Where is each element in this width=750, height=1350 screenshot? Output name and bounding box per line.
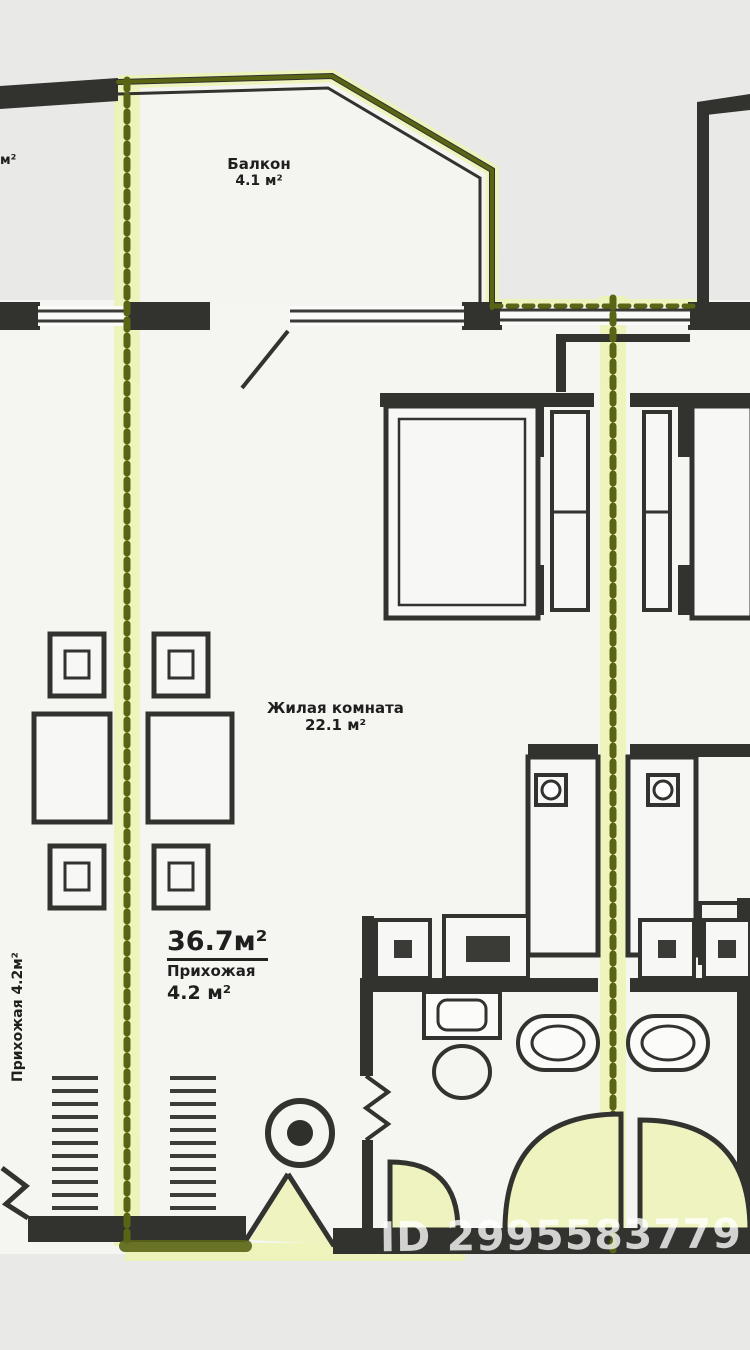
living-room-name: Жилая комната: [248, 700, 423, 717]
living-room-label: Жилая комната 22.1 м²: [248, 700, 423, 735]
sink-icon: [394, 940, 412, 958]
balcony-area: 4.1 м²: [193, 173, 325, 189]
wall-bottom-left: [28, 1216, 246, 1242]
wall-right-top: [697, 102, 709, 310]
area-summary: 36.7м² Прихожая 4.2 м²: [167, 926, 327, 1005]
living-room-area: 22.1 м²: [248, 717, 423, 734]
wall-neighbor-thin: [556, 334, 690, 342]
bed-neighbor: [692, 406, 750, 618]
sink-icon: [658, 940, 676, 958]
closet-shelves: [52, 1076, 98, 1218]
sink-basin: [628, 1016, 708, 1070]
edge-label-fragment: м²: [0, 154, 26, 169]
floor-areas: [0, 78, 750, 1254]
balcony-floor: [118, 78, 492, 306]
washer-icon: [542, 781, 560, 799]
floor-plan-drawing: [0, 0, 750, 1350]
floor-plan: Балкон 4.1 м² Жилая комната 22.1 м² 36.7…: [0, 0, 750, 1350]
wall-bath-left: [360, 992, 373, 1076]
stove-icon: [466, 936, 510, 962]
neighbor-room-label: Прихожая 4.2м²: [10, 922, 26, 1082]
dining-table: [148, 714, 232, 822]
dining-table: [34, 714, 110, 822]
listing-id-watermark: ID 2995583779: [380, 1210, 750, 1262]
closet-shelves: [170, 1076, 216, 1218]
bed: [386, 406, 538, 618]
balcony-label: Балкон 4.1 м²: [193, 156, 325, 189]
washer-icon: [654, 781, 672, 799]
wall-right-cap: [697, 94, 750, 116]
total-area: 36.7м²: [167, 926, 268, 961]
balcony-name: Балкон: [193, 156, 325, 173]
hallway-area: 4.2 м²: [167, 983, 327, 1005]
bed-zone: [386, 406, 750, 618]
hallway-name: Прихожая: [167, 963, 327, 980]
sink-basin: [518, 1016, 598, 1070]
